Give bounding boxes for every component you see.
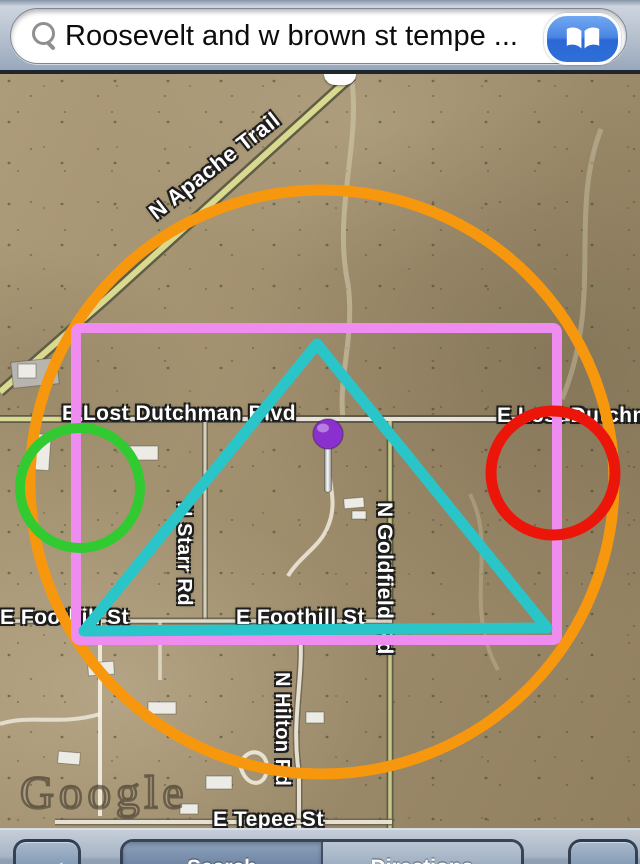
orange-circle: [30, 190, 614, 774]
tab-directions[interactable]: Directions: [321, 842, 521, 864]
tab-search[interactable]: Search: [123, 842, 321, 864]
search-icon: [32, 22, 55, 45]
search-bar: Roosevelt and w brown st tempe ...: [0, 0, 640, 74]
purple-pin[interactable]: [313, 419, 343, 492]
open-book-icon: [563, 26, 603, 53]
search-input[interactable]: Roosevelt and w brown st tempe ...: [10, 8, 627, 64]
location-arrow-icon: [28, 858, 66, 864]
bookmarks-button[interactable]: [544, 13, 621, 65]
search-directions-segmented-control: Search Directions: [120, 839, 524, 864]
map-satellite-view[interactable]: N Apache TrailE Lost Dutchman BlvdE Lost…: [0, 74, 640, 828]
annotation-overlay: [0, 74, 640, 828]
page-curl-icon: [584, 859, 622, 864]
search-query-text[interactable]: Roosevelt and w brown st tempe ...: [65, 9, 565, 63]
iphone-maps-screen: Roosevelt and w brown st tempe ...: [0, 0, 640, 864]
page-curl-button[interactable]: [568, 839, 638, 864]
current-location-button[interactable]: [13, 839, 81, 864]
bottom-toolbar: Search Directions: [0, 828, 640, 864]
pink-rectangle: [76, 328, 557, 640]
cyan-triangle: [84, 344, 547, 631]
